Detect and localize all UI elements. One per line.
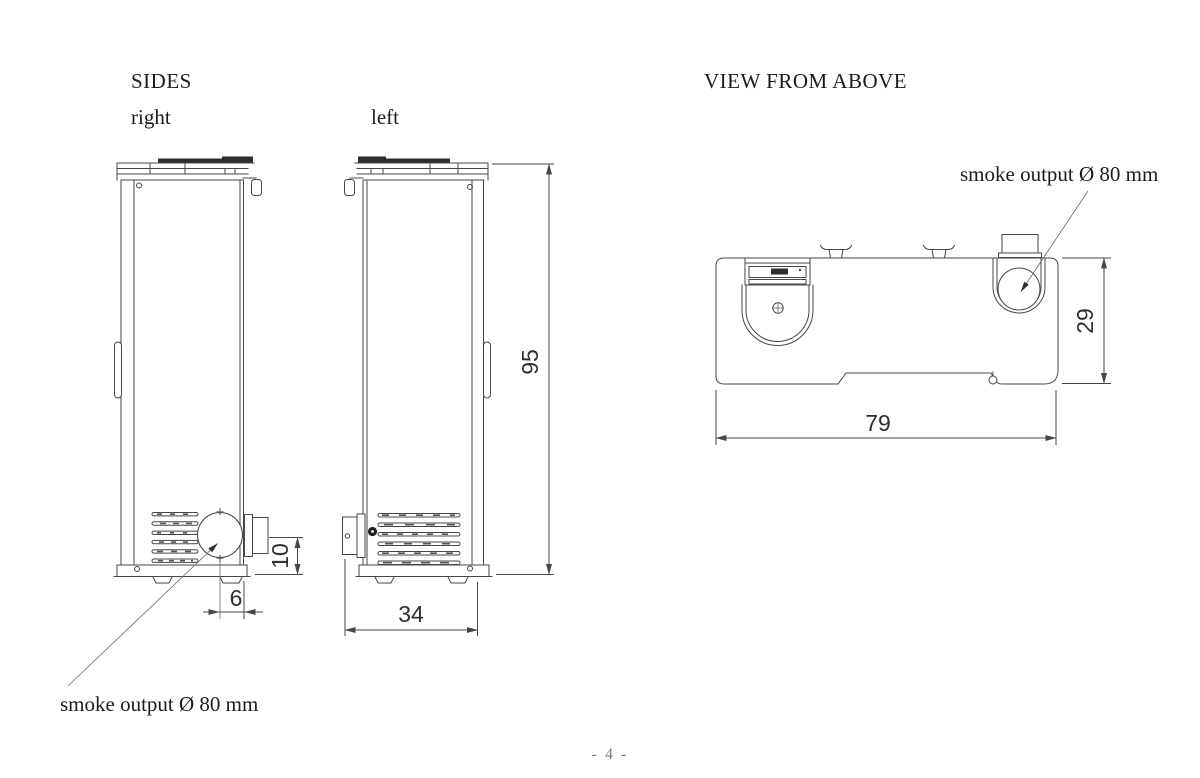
foot xyxy=(153,577,172,583)
foot xyxy=(448,577,468,583)
sides-title: SIDES xyxy=(131,69,192,93)
outlet-flange xyxy=(357,514,365,558)
dimension-depth: 34 xyxy=(345,559,478,636)
dim-79-value: 79 xyxy=(865,410,891,436)
rear-clip xyxy=(821,246,852,259)
page-number: - 4 - xyxy=(592,746,629,763)
foot xyxy=(220,577,242,583)
foot xyxy=(375,577,394,583)
outlet-flange xyxy=(999,253,1042,258)
dimension-width: 79 xyxy=(716,390,1056,445)
smoke-outlet-circle xyxy=(998,268,1040,310)
vent-grille xyxy=(378,514,460,565)
technical-drawing: SIDES right left VIEW FROM ABOVE xyxy=(0,0,1200,778)
dim-29-value: 29 xyxy=(1072,308,1098,334)
latch-pin xyxy=(989,376,997,384)
smoke-outlet-circle xyxy=(198,513,243,558)
screw-dot xyxy=(468,566,473,571)
control-panel xyxy=(745,258,810,285)
outlet-flange xyxy=(245,515,253,557)
smoke-outlet-top xyxy=(993,235,1045,314)
dim-10-value: 10 xyxy=(267,543,293,569)
right-view-label: right xyxy=(131,105,171,129)
smoke-output-label-side: smoke output Ø 80 mm xyxy=(60,692,258,716)
dimension-height: 95 xyxy=(492,164,554,575)
vent-grille xyxy=(152,513,198,563)
top-view-drawing: 79 29 smoke output Ø 80 mm xyxy=(716,162,1158,445)
outlet-pipe xyxy=(1002,235,1038,254)
side-handle xyxy=(115,342,122,398)
screw-dot xyxy=(135,567,140,572)
dim-34-value: 34 xyxy=(398,601,424,627)
top-view-title: VIEW FROM ABOVE xyxy=(704,69,907,93)
left-side-view-drawing: 34 95 xyxy=(343,157,555,637)
left-view-label: left xyxy=(371,105,399,129)
dim-6-value: 6 xyxy=(230,585,243,611)
right-side-view-drawing: 10 6 smoke output Ø 80 mm xyxy=(60,157,303,717)
hopper-housing xyxy=(742,285,813,346)
dimension-outlet-offset: 6 xyxy=(203,581,263,619)
display-screen xyxy=(771,269,788,275)
dimension-top-depth: 29 xyxy=(1062,258,1111,384)
screw-dot xyxy=(137,183,142,188)
dim-95-value: 95 xyxy=(517,349,543,375)
outlet-pipe xyxy=(253,518,269,554)
side-handle xyxy=(484,342,491,398)
smoke-output-label-top: smoke output Ø 80 mm xyxy=(960,162,1158,186)
manual-page: SIDES right left VIEW FROM ABOVE xyxy=(0,0,1200,778)
rear-clip xyxy=(924,246,955,259)
